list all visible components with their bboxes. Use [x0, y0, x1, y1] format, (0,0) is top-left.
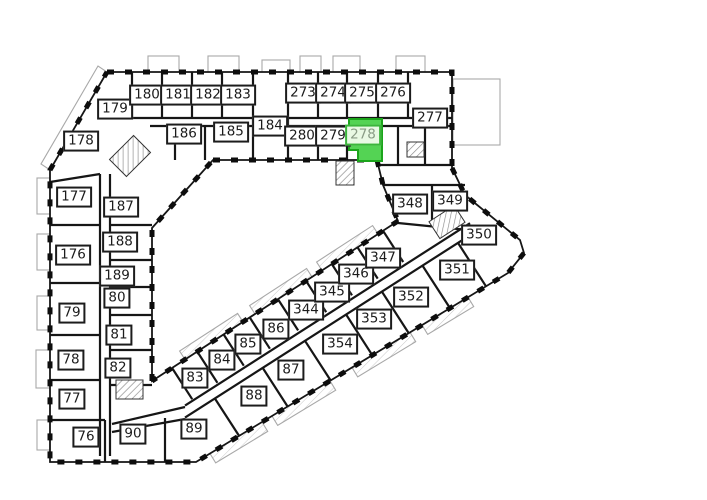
unit-label-85[interactable]: 85	[234, 334, 261, 355]
unit-label-349[interactable]: 349	[432, 191, 468, 212]
unit-label-81[interactable]: 81	[105, 325, 132, 346]
unit-label-86[interactable]: 86	[262, 319, 289, 340]
unit-label-185[interactable]: 185	[213, 122, 249, 143]
unit-label-76[interactable]: 76	[72, 427, 99, 448]
unit-label-189[interactable]: 189	[99, 266, 135, 287]
unit-label-89[interactable]: 89	[180, 419, 207, 440]
unit-label-183[interactable]: 183	[220, 85, 256, 106]
unit-label-87[interactable]: 87	[277, 360, 304, 381]
unit-label-351[interactable]: 351	[439, 260, 475, 281]
unit-label-177[interactable]: 177	[56, 187, 92, 208]
unit-label-348[interactable]: 348	[392, 194, 428, 215]
unit-label-186[interactable]: 186	[166, 124, 202, 145]
unit-label-347[interactable]: 347	[365, 248, 401, 269]
unit-label-188[interactable]: 188	[102, 232, 138, 253]
unit-label-90[interactable]: 90	[119, 424, 146, 445]
unit-label-352[interactable]: 352	[393, 287, 429, 308]
unit-label-79[interactable]: 79	[58, 303, 85, 324]
unit-label-80[interactable]: 80	[103, 288, 130, 309]
unit-label-344[interactable]: 344	[288, 300, 324, 321]
unit-label-278[interactable]: 278	[345, 125, 381, 146]
unit-label-176[interactable]: 176	[55, 245, 91, 266]
unit-label-345[interactable]: 345	[314, 282, 350, 303]
floor-plan: 1791781801811821831861851842732742752762…	[0, 0, 707, 500]
unit-label-178[interactable]: 178	[63, 131, 99, 152]
unit-label-350[interactable]: 350	[461, 225, 497, 246]
unit-label-84[interactable]: 84	[208, 350, 235, 371]
unit-label-276[interactable]: 276	[375, 83, 411, 104]
unit-label-88[interactable]: 88	[240, 386, 267, 407]
unit-label-82[interactable]: 82	[104, 358, 131, 379]
unit-label-277[interactable]: 277	[412, 108, 448, 129]
unit-label-78[interactable]: 78	[57, 350, 84, 371]
unit-label-187[interactable]: 187	[103, 197, 139, 218]
unit-label-354[interactable]: 354	[322, 334, 358, 355]
unit-label-353[interactable]: 353	[356, 309, 392, 330]
unit-label-184[interactable]: 184	[252, 116, 288, 137]
unit-label-179[interactable]: 179	[97, 99, 133, 120]
unit-label-77[interactable]: 77	[58, 389, 85, 410]
unit-label-83[interactable]: 83	[181, 368, 208, 389]
